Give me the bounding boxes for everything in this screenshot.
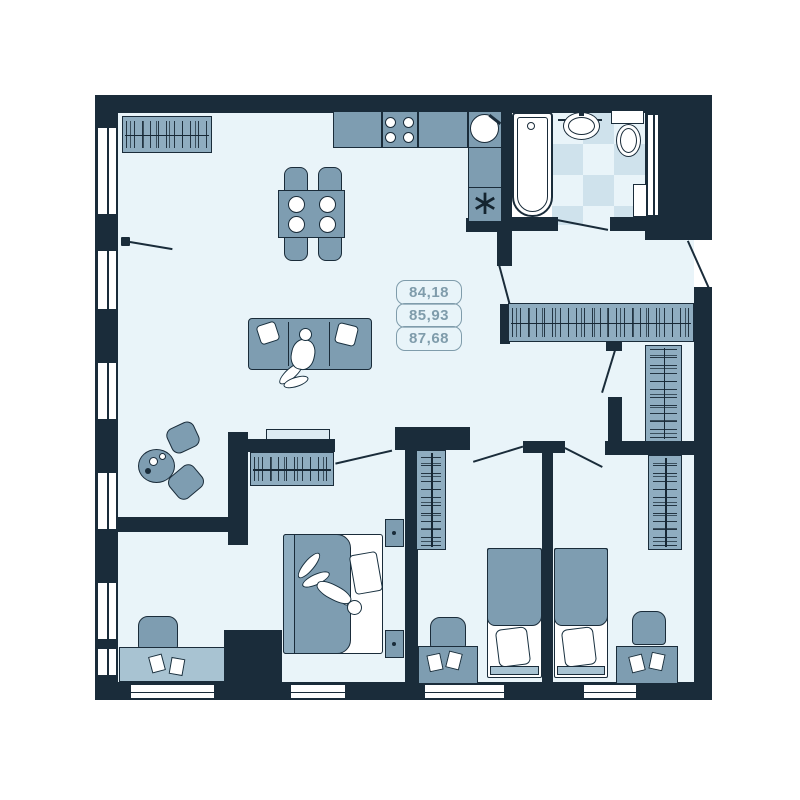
wall-bedroom2-bedroom3-divider (542, 453, 553, 682)
stove-burner-icon (403, 117, 414, 128)
desk-chair (632, 611, 666, 645)
bed-pillow (495, 626, 531, 668)
stove-burner-icon (385, 132, 396, 143)
appliance-asterisk-icon: ∗ (468, 187, 502, 222)
wash-basin (563, 112, 600, 140)
nightstand (385, 630, 404, 658)
window-left-3 (97, 362, 117, 420)
round-coffee-table (138, 449, 175, 483)
bed-pillow (561, 626, 597, 668)
wardrobe-bedroom3 (648, 455, 682, 550)
single-bed-blanket (487, 548, 542, 626)
single-bed-footboard (490, 666, 539, 675)
wardrobe-hall (508, 303, 694, 342)
wardrobe-bedroom2 (416, 450, 446, 550)
wall-master-top-tv (240, 439, 335, 452)
dining-chair (284, 235, 308, 261)
toilet-bowl-inner (620, 128, 637, 153)
area-label-box: 84,18 85,93 87,68 (396, 280, 462, 351)
wall-dressing-bedroom3-divider (605, 441, 712, 455)
plate-icon (288, 196, 305, 213)
window-bottom-3 (424, 684, 505, 699)
toilet-bowl (616, 124, 641, 157)
counter-section-line (381, 112, 383, 147)
tv-console (266, 429, 330, 440)
person-sitting-head (299, 328, 312, 341)
wall-right (694, 287, 712, 700)
area-value: 85,93 (396, 303, 462, 328)
stove-burner-icon (385, 117, 396, 128)
wardrobe-living (122, 116, 212, 153)
toilet-tank (611, 110, 644, 124)
bathtub-inner-rim (517, 117, 548, 212)
wall-bath-bottom-right (610, 217, 645, 231)
balcony-door-hinge (121, 237, 130, 246)
kitchen-counter-top (333, 111, 468, 148)
wall-kitchen-bath-divider (502, 95, 512, 222)
area-value: 87,68 (396, 326, 462, 351)
window-bottom-4 (583, 684, 637, 699)
kitchen-counter-right (468, 147, 502, 188)
counter-section-line (417, 112, 419, 147)
knob-icon (392, 642, 396, 646)
cup-icon (159, 453, 166, 460)
floor-plan-canvas: ∗ (0, 0, 800, 800)
wall-corridor-t (523, 441, 565, 453)
single-bed-blanket (554, 548, 608, 626)
window-top-right-slot (647, 114, 659, 216)
bathtub (512, 112, 553, 217)
hanger-rail-icon (431, 453, 433, 547)
desk-chair (430, 617, 466, 649)
window-left-4 (97, 472, 117, 530)
window-left-5 (97, 582, 117, 640)
dining-chair (318, 235, 342, 261)
wall-hall-stub (497, 222, 512, 266)
hanger-rail-icon (664, 348, 666, 439)
area-value: 84,18 (396, 280, 462, 305)
cup-icon (145, 468, 151, 474)
window-left-1 (97, 127, 117, 215)
plate-icon (319, 216, 336, 233)
stove-burner-icon (403, 132, 414, 143)
sofa-seat-divider (329, 322, 330, 366)
paper-sheet (169, 657, 186, 676)
basin-inner (568, 117, 595, 135)
person-lying-head (347, 600, 362, 615)
sofa-seat-divider (288, 322, 289, 366)
bathroom-door-panel (633, 184, 647, 217)
window-bottom-2 (290, 684, 346, 699)
basin-faucet-icon (579, 106, 584, 116)
wall-dressing-left (608, 397, 622, 443)
nightstand (385, 519, 404, 547)
cup-icon (149, 457, 158, 466)
wall-bedroom2-top (395, 427, 470, 450)
single-bed-footboard (557, 666, 605, 675)
wall-corner-chunk (224, 630, 282, 682)
wardrobe-master (250, 452, 334, 486)
desk (616, 646, 678, 684)
window-left-2 (97, 250, 117, 310)
hanger-rail-icon (511, 323, 691, 325)
knob-icon (392, 531, 396, 535)
wall-study-top (118, 517, 248, 532)
dining-table (278, 190, 345, 238)
double-bed-footboard (283, 534, 295, 654)
window-left-6 (97, 648, 117, 676)
desk-chair (138, 616, 178, 650)
hanger-rail-icon (253, 469, 331, 471)
wardrobe-dressing (645, 345, 682, 442)
plate-icon (319, 196, 336, 213)
drain-icon (527, 122, 535, 130)
plate-icon (288, 216, 305, 233)
hanger-rail-icon (125, 135, 209, 137)
window-bottom-1 (130, 684, 215, 699)
hanger-rail-icon (665, 458, 667, 547)
